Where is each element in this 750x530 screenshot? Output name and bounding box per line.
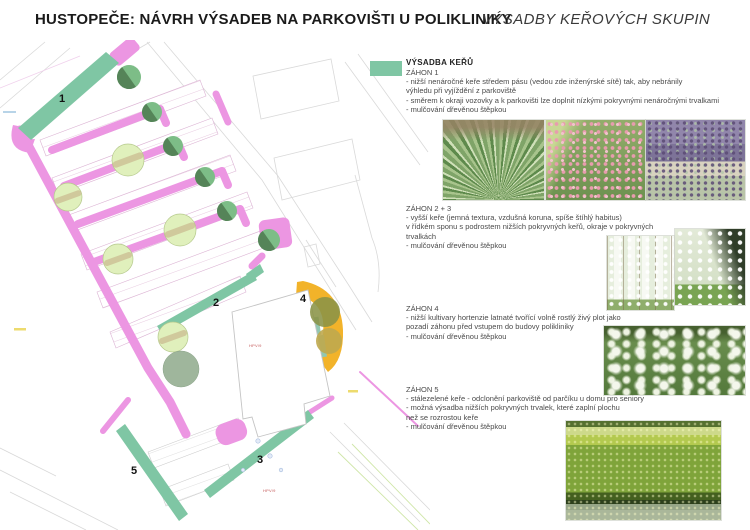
greenery-lines xyxy=(338,444,430,530)
bed-label-4: 4 xyxy=(300,293,307,305)
bed-label-2: 2 xyxy=(213,297,219,309)
legend-swatch xyxy=(370,61,402,76)
section-line: pozadí záhonu před vstupem do budovy pol… xyxy=(406,322,621,331)
section-zahon-1: ZÁHON 1 - nižší nenáročné keře středem p… xyxy=(406,68,719,114)
micro-blue-label xyxy=(3,111,16,113)
tree-olive-light xyxy=(316,328,342,354)
section-heading: ZÁHON 1 xyxy=(406,68,719,77)
cadastral-lines xyxy=(0,42,430,530)
photo-white-blossom-shrub-rows xyxy=(607,236,674,310)
section-line: v řídkém sponu s podrostem nižších pokry… xyxy=(406,222,653,231)
page-subtitle: VÝSADBY KEŘOVÝCH SKUPIN xyxy=(482,11,710,28)
section-heading: ZÁHON 2 + 3 xyxy=(406,204,653,213)
bed-label-5: 5 xyxy=(131,465,137,477)
section-line: - nižší nenáročné keře středem pásu (ved… xyxy=(406,77,719,86)
parcel-label-1: HPV/9 xyxy=(249,343,262,348)
parcel-label-2: HPV/9 xyxy=(263,488,276,493)
bed-5 xyxy=(116,424,188,521)
section-line: - stálezelené keře - odclonění parkovišt… xyxy=(406,394,644,403)
section-heading: ZÁHON 4 xyxy=(406,304,621,313)
section-line: - nižší kultivary hortenzie latnaté tvoř… xyxy=(406,313,621,322)
section-line: - mulčování dřevěnou štěpkou xyxy=(406,105,719,114)
legend-title: VÝSADBA KEŘŮ xyxy=(406,58,473,67)
plan-sheet: HUSTOPEČE: NÁVRH VÝSADEB NA PARKOVIŠTI U… xyxy=(0,0,750,530)
tree-grey xyxy=(163,351,199,387)
photo-lavender-shrubs xyxy=(646,120,745,200)
photo-white-hydrangea-hedge xyxy=(604,326,745,395)
bed-label-3: 3 xyxy=(257,454,263,466)
section-line: - mulčování dřevěnou štěpkou xyxy=(406,332,621,341)
section-line: - vyšší keře (jemná textura, vzdušná kor… xyxy=(406,213,653,222)
section-line: výhledu při vyjíždění z parkoviště xyxy=(406,86,719,95)
photo-ornamental-grass xyxy=(443,120,544,200)
micro-yellow-label-1 xyxy=(14,328,26,331)
page-title: HUSTOPEČE: NÁVRH VÝSADEB NA PARKOVIŠTI U… xyxy=(35,11,512,28)
photo-white-blossom-shrub-lawn xyxy=(675,229,745,305)
section-zahon-4: ZÁHON 4 - nižší kultivary hortenzie latn… xyxy=(406,304,621,341)
photo-evergreen-hedge xyxy=(566,421,721,520)
section-line: - možná výsadba nižších pokryvných trval… xyxy=(406,403,644,412)
photo-pink-flowering-shrub xyxy=(546,120,645,200)
bed-label-1: 1 xyxy=(59,93,65,105)
site-plan-drawing: 1 2 3 4 5 HPV/9 HPV/9 xyxy=(0,40,430,530)
micro-yellow-label-2 xyxy=(348,390,358,393)
tree-olive-dark xyxy=(310,297,340,327)
faint-pink-line xyxy=(0,56,80,88)
section-line: - směrem k okraji vozovky a k parkovišti… xyxy=(406,96,719,105)
